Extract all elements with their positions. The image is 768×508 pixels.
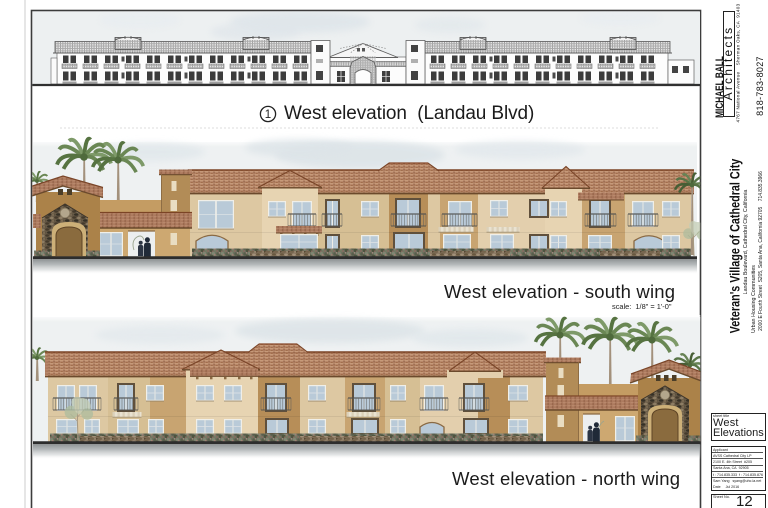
svg-text:1: 1 (265, 109, 271, 121)
